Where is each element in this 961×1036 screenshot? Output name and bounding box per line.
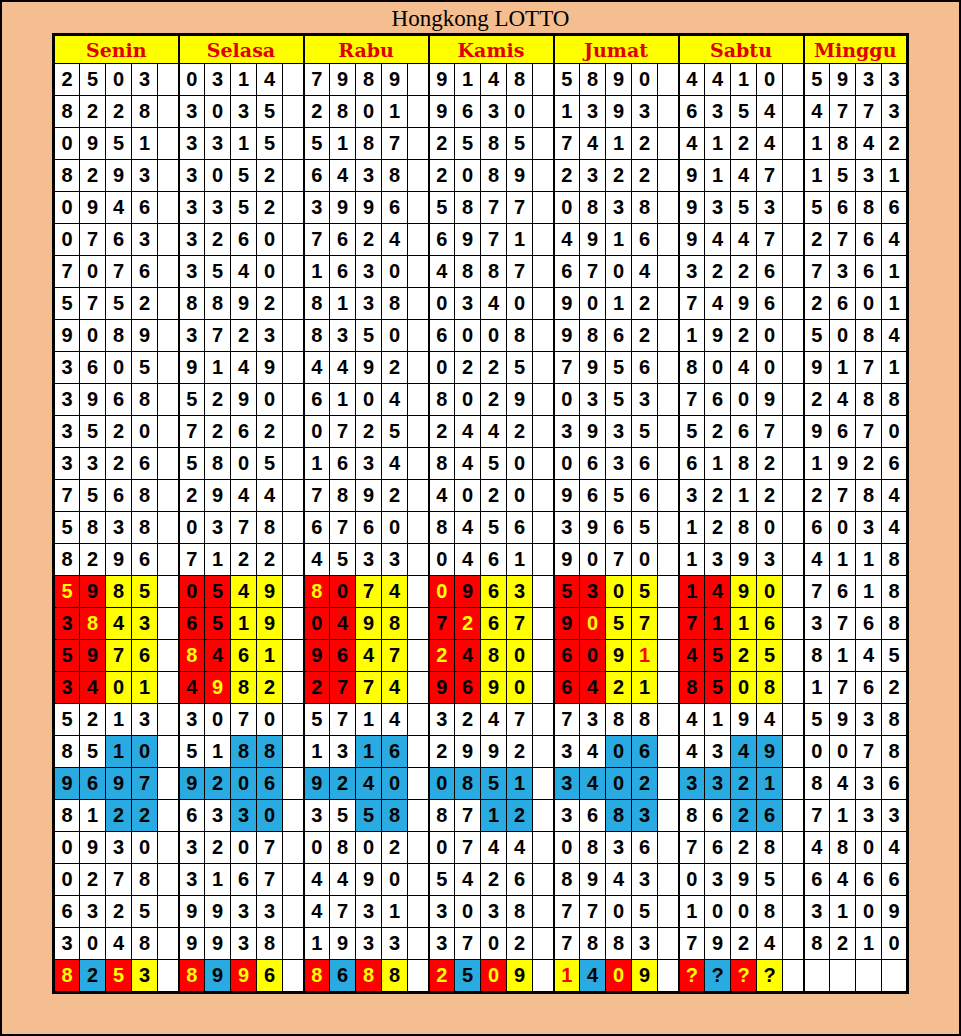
digit-cell: 5 — [705, 640, 731, 672]
digit-cell: 6 — [330, 256, 356, 288]
digit-cell: 7 — [554, 352, 580, 384]
digit-cell: 0 — [54, 864, 80, 896]
digit-cell: 1 — [679, 576, 705, 608]
digit-cell: 8 — [304, 576, 330, 608]
digit-cell: 4 — [382, 224, 408, 256]
digit-cell: 8 — [132, 384, 158, 416]
digit-cell: 3 — [705, 192, 731, 224]
separator-cell — [158, 960, 179, 993]
digit-cell: 1 — [804, 448, 830, 480]
digit-cell: 8 — [455, 256, 481, 288]
lotto-board: Hongkong LOTTO SeninSelasaRabuKamisJumat… — [0, 0, 961, 1036]
table-row: 3326580516348450063661821926 — [54, 448, 908, 480]
digit-cell: 5 — [356, 800, 382, 832]
digit-cell: 1 — [856, 576, 882, 608]
digit-cell: 1 — [705, 128, 731, 160]
digit-cell: 1 — [731, 64, 757, 96]
digit-cell: 4 — [330, 608, 356, 640]
digit-cell: 9 — [257, 608, 283, 640]
digit-cell: 1 — [830, 896, 856, 928]
digit-cell: 3 — [231, 928, 257, 960]
table-row: 0946335239965877083893535686 — [54, 192, 908, 224]
digit-cell: 1 — [304, 448, 330, 480]
digit-cell: 4 — [455, 544, 481, 576]
separator-cell — [283, 96, 304, 128]
digit-cell: 5 — [132, 896, 158, 928]
digit-cell: 1 — [304, 736, 330, 768]
digit-cell: 4 — [804, 832, 830, 864]
separator-cell — [283, 544, 304, 576]
digit-cell: 3 — [606, 192, 632, 224]
digit-cell: 8 — [507, 896, 533, 928]
digit-cell: 4 — [606, 864, 632, 896]
separator-cell — [783, 960, 804, 993]
separator-cell — [158, 224, 179, 256]
digit-cell: 4 — [882, 512, 908, 544]
separator-cell — [533, 896, 554, 928]
digit-cell: 4 — [481, 64, 507, 96]
digit-cell: 9 — [106, 768, 132, 800]
digit-cell: 4 — [705, 576, 731, 608]
digit-cell: 4 — [757, 128, 783, 160]
digit-cell: 9 — [257, 576, 283, 608]
separator-cell — [783, 864, 804, 896]
separator-cell — [408, 800, 429, 832]
digit-cell: 7 — [481, 192, 507, 224]
digit-cell: 4 — [330, 352, 356, 384]
separator-cell — [283, 352, 304, 384]
separator-cell — [658, 512, 679, 544]
digit-cell: 4 — [179, 672, 205, 704]
digit-cell: 3 — [705, 864, 731, 896]
digit-cell: 9 — [731, 704, 757, 736]
digit-cell: 2 — [429, 160, 455, 192]
digit-cell: 0 — [304, 608, 330, 640]
day-header-senin: Senin — [54, 35, 179, 64]
digit-cell: 6 — [882, 864, 908, 896]
digit-cell: 1 — [106, 736, 132, 768]
digit-cell: 7 — [507, 608, 533, 640]
digit-cell: 5 — [257, 448, 283, 480]
digit-cell: 2 — [382, 480, 408, 512]
digit-cell: 1 — [205, 544, 231, 576]
digit-cell: 9 — [179, 928, 205, 960]
separator-cell — [408, 288, 429, 320]
separator-cell — [408, 960, 429, 993]
digit-cell: 9 — [606, 96, 632, 128]
digit-cell: 9 — [731, 576, 757, 608]
digit-cell: 4 — [580, 736, 606, 768]
digit-cell: 4 — [257, 64, 283, 96]
digit-cell: 1 — [257, 640, 283, 672]
digit-cell: 9 — [507, 160, 533, 192]
digit-cell: 3 — [632, 384, 658, 416]
digit-cell: 7 — [304, 224, 330, 256]
digit-cell: 3 — [231, 800, 257, 832]
digit-cell: 0 — [132, 736, 158, 768]
digit-cell: 1 — [882, 352, 908, 384]
digit-cell: 6 — [606, 320, 632, 352]
digit-cell: 4 — [731, 352, 757, 384]
separator-cell — [783, 448, 804, 480]
digit-cell: 5 — [606, 608, 632, 640]
separator-cell — [783, 288, 804, 320]
digit-cell: 2 — [304, 672, 330, 704]
digit-cell: 7 — [382, 640, 408, 672]
digit-cell: 6 — [731, 416, 757, 448]
digit-cell: 9 — [304, 640, 330, 672]
digit-cell: 4 — [580, 128, 606, 160]
digit-cell: 0 — [507, 480, 533, 512]
digit-cell: 3 — [54, 928, 80, 960]
digit-cell: 7 — [132, 768, 158, 800]
digit-cell: 0 — [356, 832, 382, 864]
separator-cell — [533, 544, 554, 576]
digit-cell: 4 — [481, 704, 507, 736]
digit-cell: 6 — [554, 256, 580, 288]
digit-cell: 5 — [481, 768, 507, 800]
digit-cell: 6 — [830, 288, 856, 320]
separator-cell — [533, 736, 554, 768]
separator-cell — [533, 448, 554, 480]
digit-cell: 8 — [882, 736, 908, 768]
digit-cell: 0 — [731, 896, 757, 928]
digit-cell: 1 — [231, 608, 257, 640]
digit-cell: 0 — [54, 832, 80, 864]
digit-cell: 5 — [205, 256, 231, 288]
digit-cell: 0 — [632, 544, 658, 576]
separator-cell — [408, 672, 429, 704]
digit-cell: 7 — [330, 896, 356, 928]
digit-cell: 1 — [507, 768, 533, 800]
digit-cell: 5 — [382, 416, 408, 448]
digit-cell: 2 — [705, 480, 731, 512]
digit-cell: 2 — [507, 416, 533, 448]
digit-cell: 0 — [804, 736, 830, 768]
digit-cell: 6 — [830, 576, 856, 608]
separator-cell — [408, 832, 429, 864]
digit-cell: 2 — [257, 416, 283, 448]
separator-cell — [783, 480, 804, 512]
digit-cell: 6 — [356, 512, 382, 544]
digit-cell: 8 — [54, 800, 80, 832]
digit-cell: 9 — [356, 608, 382, 640]
digit-cell: 1 — [554, 960, 580, 993]
separator-cell — [658, 864, 679, 896]
digit-cell: 5 — [731, 192, 757, 224]
digit-cell: 1 — [330, 288, 356, 320]
digit-cell: 1 — [830, 800, 856, 832]
digit-cell: 9 — [231, 288, 257, 320]
separator-cell — [283, 416, 304, 448]
digit-cell: 5 — [304, 704, 330, 736]
digit-cell: 3 — [382, 544, 408, 576]
digit-cell: 2 — [205, 224, 231, 256]
separator-cell — [283, 896, 304, 928]
day-header-jumat: Jumat — [554, 35, 679, 64]
digit-cell: 6 — [231, 864, 257, 896]
separator-cell — [408, 384, 429, 416]
separator-cell — [283, 224, 304, 256]
separator-cell — [533, 512, 554, 544]
digit-cell: 9 — [132, 320, 158, 352]
digit-cell: 8 — [856, 384, 882, 416]
digit-cell: 6 — [705, 384, 731, 416]
digit-cell — [830, 960, 856, 993]
digit-cell: 5 — [80, 480, 106, 512]
digit-cell: 2 — [731, 768, 757, 800]
digit-cell: 0 — [231, 448, 257, 480]
digit-cell: 7 — [679, 608, 705, 640]
table-row: 3605914944920225795680409171 — [54, 352, 908, 384]
digit-cell: 3 — [705, 544, 731, 576]
digit-cell: 2 — [632, 320, 658, 352]
digit-cell: 0 — [382, 256, 408, 288]
digit-cell: 0 — [632, 64, 658, 96]
digit-cell: 8 — [606, 928, 632, 960]
digit-cell: 6 — [830, 192, 856, 224]
digit-cell: 4 — [632, 256, 658, 288]
digit-cell: 5 — [632, 512, 658, 544]
separator-cell — [158, 672, 179, 704]
digit-cell: 8 — [830, 832, 856, 864]
digit-cell: 9 — [179, 896, 205, 928]
table-row: 9697920692400851340233218436 — [54, 768, 908, 800]
separator-cell — [158, 160, 179, 192]
digit-cell: 7 — [804, 800, 830, 832]
digit-cell: 9 — [804, 416, 830, 448]
digit-cell: 2 — [429, 640, 455, 672]
separator-cell — [283, 768, 304, 800]
digit-cell: 8 — [179, 640, 205, 672]
digit-cell: 9 — [330, 192, 356, 224]
digit-cell: 2 — [731, 320, 757, 352]
digit-cell: 4 — [679, 64, 705, 96]
table-row: 3048993819333702788379248210 — [54, 928, 908, 960]
digit-cell: 9 — [106, 544, 132, 576]
digit-cell: 9 — [330, 64, 356, 96]
digit-cell: 8 — [257, 736, 283, 768]
separator-cell — [658, 928, 679, 960]
digit-cell: 3 — [554, 416, 580, 448]
digit-cell: 8 — [580, 832, 606, 864]
table-row: 5838037867608456396512806034 — [54, 512, 908, 544]
separator-cell — [408, 704, 429, 736]
digit-cell: 0 — [382, 512, 408, 544]
digit-cell: 3 — [429, 896, 455, 928]
digit-cell: 9 — [507, 384, 533, 416]
digit-cell: 7 — [106, 256, 132, 288]
separator-cell — [158, 352, 179, 384]
digit-cell: 6 — [231, 416, 257, 448]
separator-cell — [533, 288, 554, 320]
digit-cell: 5 — [632, 416, 658, 448]
digit-cell: 2 — [804, 384, 830, 416]
digit-cell: 6 — [304, 512, 330, 544]
day-header-minggu: Minggu — [804, 35, 908, 64]
separator-cell — [158, 896, 179, 928]
digit-cell: 8 — [429, 800, 455, 832]
separator-cell — [783, 320, 804, 352]
separator-cell — [658, 320, 679, 352]
digit-cell: 2 — [80, 160, 106, 192]
digit-cell: 8 — [132, 480, 158, 512]
separator-cell — [283, 512, 304, 544]
separator-cell — [158, 288, 179, 320]
digit-cell: 5 — [54, 512, 80, 544]
digit-cell: 1 — [304, 256, 330, 288]
digit-cell: 3 — [257, 896, 283, 928]
digit-cell: 9 — [54, 320, 80, 352]
digit-cell: 5 — [132, 352, 158, 384]
separator-cell — [158, 320, 179, 352]
digit-cell: 8 — [580, 320, 606, 352]
digit-cell: 6 — [132, 256, 158, 288]
separator-cell — [283, 864, 304, 896]
separator-cell — [158, 128, 179, 160]
digit-cell: 9 — [257, 352, 283, 384]
separator-cell — [408, 352, 429, 384]
digit-cell: 4 — [80, 672, 106, 704]
digit-cell: 5 — [106, 128, 132, 160]
digit-cell: 6 — [554, 640, 580, 672]
digit-cell: 0 — [830, 736, 856, 768]
digit-cell: ? — [705, 960, 731, 993]
digit-cell: 7 — [679, 832, 705, 864]
digit-cell: 0 — [554, 384, 580, 416]
separator-cell — [658, 736, 679, 768]
digit-cell: 7 — [54, 480, 80, 512]
digit-cell: 0 — [606, 896, 632, 928]
digit-cell: 9 — [106, 160, 132, 192]
separator-cell — [408, 512, 429, 544]
digit-cell: 3 — [804, 608, 830, 640]
digit-cell: 7 — [481, 224, 507, 256]
separator-cell — [783, 608, 804, 640]
table-row: 5752889281380340901274962601 — [54, 288, 908, 320]
separator-cell — [158, 864, 179, 896]
digit-cell: 5 — [757, 864, 783, 896]
digit-cell: 7 — [554, 704, 580, 736]
digit-cell: 8 — [679, 672, 705, 704]
separator-cell — [158, 832, 179, 864]
separator-cell — [658, 640, 679, 672]
separator-cell — [158, 640, 179, 672]
digit-cell: 3 — [632, 864, 658, 896]
digit-cell: 5 — [330, 544, 356, 576]
digit-cell: 5 — [882, 640, 908, 672]
digit-cell: 1 — [731, 480, 757, 512]
digit-cell: 8 — [481, 256, 507, 288]
digit-cell: 1 — [330, 128, 356, 160]
separator-cell — [283, 928, 304, 960]
digit-cell: 7 — [554, 928, 580, 960]
separator-cell — [408, 544, 429, 576]
digit-cell: 3 — [830, 256, 856, 288]
digit-cell: 3 — [205, 192, 231, 224]
digit-cell: 8 — [580, 928, 606, 960]
digit-cell: 5 — [106, 960, 132, 993]
separator-cell — [783, 224, 804, 256]
digit-cell: 0 — [382, 864, 408, 896]
separator-cell — [283, 192, 304, 224]
digit-cell: 1 — [455, 64, 481, 96]
digit-cell: 6 — [304, 160, 330, 192]
digit-cell: 2 — [304, 96, 330, 128]
digit-cell: 0 — [830, 512, 856, 544]
separator-cell — [158, 544, 179, 576]
digit-cell: 7 — [856, 416, 882, 448]
separator-cell — [408, 192, 429, 224]
digit-cell: 1 — [705, 608, 731, 640]
digit-cell: 7 — [330, 672, 356, 704]
digit-cell: 2 — [757, 480, 783, 512]
digit-cell: 9 — [580, 224, 606, 256]
digit-cell: 2 — [106, 96, 132, 128]
digit-cell: 4 — [481, 416, 507, 448]
digit-cell: 0 — [830, 320, 856, 352]
separator-cell — [283, 256, 304, 288]
digit-cell: 6 — [132, 192, 158, 224]
digit-cell: 6 — [429, 224, 455, 256]
digit-cell: 9 — [580, 416, 606, 448]
digit-cell: 2 — [257, 160, 283, 192]
digit-cell: 4 — [731, 224, 757, 256]
separator-cell — [533, 640, 554, 672]
digit-cell: 5 — [757, 640, 783, 672]
digit-cell: 2 — [606, 160, 632, 192]
digit-cell: 3 — [679, 256, 705, 288]
digit-cell: 0 — [304, 832, 330, 864]
separator-cell — [658, 384, 679, 416]
digit-cell: 0 — [257, 224, 283, 256]
separator-cell — [283, 384, 304, 416]
separator-cell — [658, 960, 679, 993]
digit-cell: 2 — [632, 160, 658, 192]
separator-cell — [658, 576, 679, 608]
separator-cell — [158, 736, 179, 768]
digit-cell: 2 — [132, 800, 158, 832]
digit-cell: 8 — [304, 288, 330, 320]
digit-cell: 3 — [804, 896, 830, 928]
separator-cell — [158, 800, 179, 832]
digit-cell: 6 — [632, 480, 658, 512]
digit-cell: 4 — [507, 832, 533, 864]
digit-cell: 2 — [804, 480, 830, 512]
digit-cell: 7 — [804, 256, 830, 288]
digit-cell: 3 — [179, 128, 205, 160]
digit-cell: 6 — [679, 96, 705, 128]
digit-cell: 6 — [580, 448, 606, 480]
separator-cell — [783, 160, 804, 192]
digit-cell: 1 — [554, 96, 580, 128]
digit-cell: 2 — [257, 192, 283, 224]
separator-cell — [408, 224, 429, 256]
digit-cell: 6 — [679, 448, 705, 480]
digit-cell: 3 — [882, 800, 908, 832]
separator-cell — [658, 448, 679, 480]
digit-cell: 9 — [205, 960, 231, 993]
separator-cell — [783, 64, 804, 96]
digit-cell: 3 — [54, 672, 80, 704]
digit-cell: 0 — [580, 640, 606, 672]
table-row: 0930320708020744083676284804 — [54, 832, 908, 864]
separator-cell — [158, 192, 179, 224]
page-title: Hongkong LOTTO — [2, 2, 959, 33]
separator-cell — [408, 864, 429, 896]
digit-cell: 4 — [382, 448, 408, 480]
separator-cell — [658, 896, 679, 928]
